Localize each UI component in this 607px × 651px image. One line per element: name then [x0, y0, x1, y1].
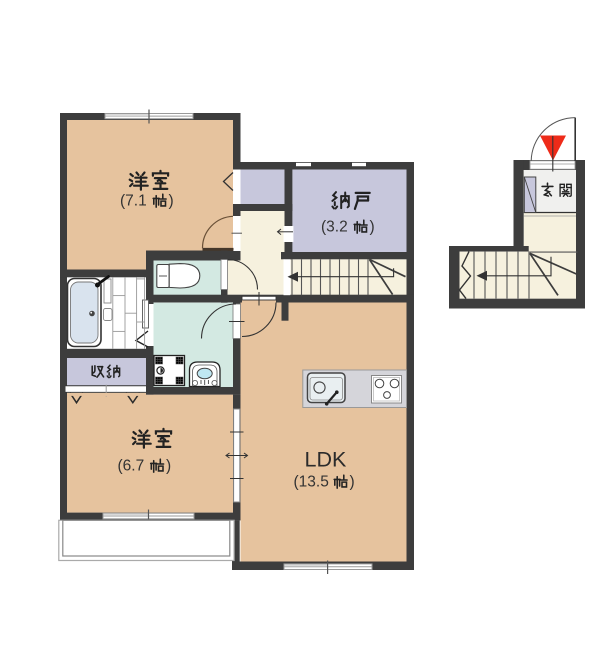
- svg-text:(3.2: (3.2: [321, 219, 348, 236]
- svg-text:): ): [350, 474, 355, 491]
- svg-text:LDK: LDK: [305, 448, 347, 472]
- svg-text:(7.1: (7.1: [120, 193, 147, 210]
- svg-text:): ): [166, 458, 171, 475]
- svg-text:(6.7: (6.7: [118, 458, 145, 475]
- svg-text:): ): [370, 219, 375, 236]
- svg-text:(13.5: (13.5: [294, 474, 329, 491]
- svg-text:): ): [169, 193, 174, 210]
